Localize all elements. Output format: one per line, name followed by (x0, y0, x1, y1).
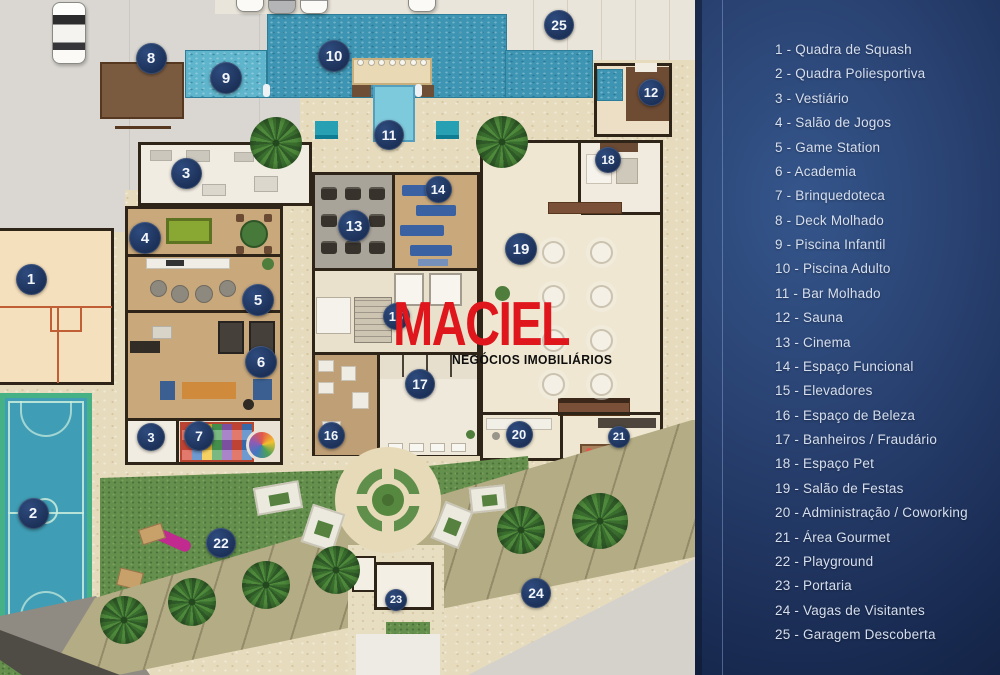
cinema-seat (321, 241, 337, 254)
fountain-center-dot (382, 494, 394, 506)
sink (409, 443, 424, 452)
exercise-mat (410, 245, 452, 256)
plan-badge-number: 25 (551, 17, 567, 33)
armchair (219, 280, 236, 297)
plan-badge-17: 17 (405, 369, 435, 399)
gym-mat (160, 381, 175, 400)
pavement-left (0, 190, 125, 232)
palm-tree (242, 561, 290, 609)
sidebar-divider-line (722, 0, 723, 675)
armchair (150, 280, 167, 297)
plan-badge-11: 11 (374, 120, 404, 150)
palm-tree (497, 506, 545, 554)
sauna-window (635, 63, 657, 72)
plan-badge-number: 23 (390, 594, 402, 606)
stall-wall (402, 355, 404, 377)
chair (236, 246, 244, 254)
plant (466, 430, 475, 439)
elevator (429, 273, 462, 306)
wall (312, 268, 480, 271)
plan-badge-14: 14 (425, 176, 452, 203)
plan-badge-24: 24 (521, 578, 551, 608)
plan-badge-number: 2 (29, 505, 37, 522)
pool-towel (436, 121, 459, 139)
fixture (202, 184, 226, 196)
plan-badge-21: 21 (608, 426, 630, 448)
plan-badge-16: 16 (318, 422, 345, 449)
stair-landing (316, 297, 351, 334)
palm-tree (100, 596, 148, 644)
site-plan (0, 0, 700, 675)
sauna-plunge-pool (597, 69, 623, 101)
fountain-gap (382, 521, 394, 537)
plan-badge-number: 6 (257, 354, 265, 371)
plan-badge-number: 21 (613, 431, 625, 443)
treadmill (218, 321, 244, 354)
fountain-plaza (335, 447, 441, 553)
salon-fixture (341, 366, 356, 381)
plan-badge-number: 8 (147, 50, 155, 67)
deck-step (115, 126, 171, 129)
hedge (386, 622, 430, 634)
cinema-seat (345, 187, 361, 200)
plan-badge-number: 16 (324, 428, 338, 443)
legend-item-22: 22 - Playground (775, 550, 968, 574)
plan-badge-number: 18 (601, 153, 614, 167)
armchair (171, 285, 189, 303)
pool-table (166, 218, 212, 244)
legend-item-16: 16 - Espaço de Beleza (775, 404, 968, 428)
car (236, 0, 264, 12)
legend-item-10: 10 - Piscina Adulto (775, 257, 968, 281)
fountain-gap (382, 463, 394, 479)
bar-stool (410, 59, 417, 66)
legend-item-18: 18 - Espaço Pet (775, 452, 968, 476)
entry-path (356, 634, 440, 675)
party-table (542, 329, 565, 352)
plant (262, 258, 274, 270)
wet-bar-deck (352, 85, 371, 97)
stall-wall (450, 355, 452, 377)
planter-slot (268, 492, 290, 506)
squash-line-box (50, 306, 82, 332)
legend-item-5: 5 - Game Station (775, 136, 968, 160)
plan-badge-number: 5 (254, 292, 262, 309)
cinema-seat (345, 241, 361, 254)
plan-badge-number: 11 (382, 127, 397, 143)
plan-badge-number: 3 (147, 430, 154, 445)
plan-badge-number: 9 (222, 70, 230, 87)
bar-stool (378, 59, 385, 66)
plan-badge-19: 19 (505, 233, 537, 265)
legend-item-12: 12 - Sauna (775, 306, 968, 330)
salon-fixture (352, 392, 369, 409)
palm-tree (168, 578, 216, 626)
plan-badge-23: 23 (385, 589, 407, 611)
plan-badge-3: 3 (137, 423, 165, 451)
exercise-mat (400, 225, 444, 236)
media-console (146, 258, 230, 269)
party-table (590, 285, 613, 308)
plan-badge-number: 13 (346, 218, 363, 235)
legend-item-1: 1 - Quadra de Squash (775, 38, 968, 62)
round-table (240, 220, 268, 248)
plan-badge-1: 1 (16, 264, 47, 295)
weight-rack (130, 341, 160, 353)
plan-badge-8: 8 (136, 43, 167, 74)
play-rug (246, 429, 278, 461)
planter-bench (469, 484, 508, 514)
plan-badge-number: 15 (389, 309, 403, 324)
plan-badge-number: 10 (326, 48, 343, 65)
cinema-seat (369, 241, 385, 254)
legend-item-24: 24 - Vagas de Visitantes (775, 599, 968, 623)
planter-slot (443, 517, 462, 536)
cinema-seat (369, 187, 385, 200)
pool-towel (315, 121, 338, 139)
legend-item-7: 7 - Brinquedoteca (775, 184, 968, 208)
legend-list: 1 - Quadra de Squash2 - Quadra Poliespor… (775, 38, 968, 647)
plan-badge-4: 4 (129, 222, 161, 254)
fixture (150, 150, 172, 161)
plan-badge-25: 25 (544, 10, 574, 40)
plant (495, 286, 510, 301)
fixture (254, 176, 278, 192)
palm-tree (572, 493, 628, 549)
fountain-gap (351, 494, 367, 506)
legend-item-21: 21 - Área Gourmet (775, 526, 968, 550)
plan-badge-15: 15 (383, 303, 410, 330)
buffet-table (548, 202, 622, 214)
plan-badge-2: 2 (18, 498, 49, 529)
fixture (418, 259, 448, 266)
plan-badge-number: 19 (513, 241, 530, 258)
plan-badge-22: 22 (206, 528, 236, 558)
pool-shower (263, 84, 270, 97)
legend-item-8: 8 - Deck Molhado (775, 209, 968, 233)
cinema-seat (321, 187, 337, 200)
plan-badge-5: 5 (242, 284, 274, 316)
gym-bench (152, 326, 172, 339)
plan-badge-number: 24 (528, 585, 544, 601)
party-table (542, 241, 565, 264)
legend-item-9: 9 - Piscina Infantil (775, 233, 968, 257)
party-table (542, 285, 565, 308)
tv-screen (166, 260, 184, 266)
car (300, 0, 328, 14)
legend-item-20: 20 - Administração / Coworking (775, 501, 968, 525)
bar-stool (420, 59, 427, 66)
chair (236, 214, 244, 222)
gourmet-counter (598, 418, 656, 428)
sink (451, 443, 466, 452)
office-chair (492, 432, 500, 440)
plan-badge-13: 13 (338, 210, 370, 242)
adult-pool-wing (505, 50, 593, 98)
cinema-seat (369, 214, 385, 227)
legend-item-25: 25 - Garagem Descoberta (775, 623, 968, 647)
plan-badge-12: 12 (638, 79, 665, 106)
palm-tree (312, 546, 360, 594)
elevator (394, 273, 424, 306)
bar-stool (368, 59, 375, 66)
palm-tree (250, 117, 302, 169)
legend-item-3: 3 - Vestiário (775, 87, 968, 111)
wall (560, 415, 563, 461)
salon-fixture (318, 360, 334, 372)
plan-badge-18: 18 (595, 147, 621, 173)
fountain-gap (409, 494, 425, 506)
plan-badge-number: 7 (195, 428, 203, 444)
exercise-ball (243, 399, 254, 410)
gym-mat (253, 379, 272, 400)
legend-item-2: 2 - Quadra Poliesportiva (775, 62, 968, 86)
legend-item-23: 23 - Portaria (775, 574, 968, 598)
plan-badge-number: 1 (27, 271, 35, 288)
fixture (234, 152, 254, 162)
plan-badge-number: 12 (644, 85, 658, 100)
plan-badge-9: 9 (210, 62, 242, 94)
party-table (542, 373, 565, 396)
floorplan-image: MACIEL NEGÓCIOS IMOBILIÁRIOS 1 - Quadra … (0, 0, 1000, 675)
plan-badge-7: 7 (184, 421, 214, 451)
legend-item-17: 17 - Banheiros / Fraudário (775, 428, 968, 452)
armchair (195, 285, 213, 303)
legend-sidebar: 1 - Quadra de Squash2 - Quadra Poliespor… (695, 0, 1000, 675)
plan-badge-number: 22 (213, 535, 229, 551)
legend-item-13: 13 - Cinema (775, 331, 968, 355)
plan-badge-10: 10 (318, 40, 350, 72)
car (52, 2, 86, 64)
plan-badge-number: 20 (512, 427, 526, 442)
plan-badge-6: 6 (245, 346, 277, 378)
palm-tree (476, 116, 528, 168)
gym-mat (182, 382, 236, 399)
cinema-seat (321, 214, 337, 227)
plan-badge-3: 3 (171, 158, 202, 189)
sink (430, 443, 445, 452)
plan-badge-number: 4 (141, 230, 149, 247)
planter-slot (314, 520, 334, 538)
chair (264, 214, 272, 222)
bar-stool (357, 59, 364, 66)
party-table (590, 241, 613, 264)
legend-item-15: 15 - Elevadores (775, 379, 968, 403)
plan-badge-number: 3 (182, 165, 190, 182)
car (408, 0, 436, 12)
planter-slot (482, 494, 498, 507)
party-table (590, 329, 613, 352)
pool-shower (415, 84, 422, 97)
legend-item-6: 6 - Academia (775, 160, 968, 184)
wall (480, 412, 663, 415)
plan-badge-20: 20 (506, 421, 533, 448)
party-table (590, 373, 613, 396)
legend-item-4: 4 - Salão de Jogos (775, 111, 968, 135)
car (268, 0, 296, 14)
sidebar-edge (695, 0, 702, 675)
plan-badge-number: 14 (431, 182, 445, 197)
exercise-mat (416, 205, 456, 216)
bar-stool (389, 59, 396, 66)
legend-item-19: 19 - Salão de Festas (775, 477, 968, 501)
legend-item-14: 14 - Espaço Funcional (775, 355, 968, 379)
wall (125, 254, 283, 257)
legend-item-11: 11 - Bar Molhado (775, 282, 968, 306)
chair (264, 246, 272, 254)
plan-badge-number: 17 (412, 376, 428, 392)
salon-fixture (318, 382, 334, 394)
bar-stool (399, 59, 406, 66)
